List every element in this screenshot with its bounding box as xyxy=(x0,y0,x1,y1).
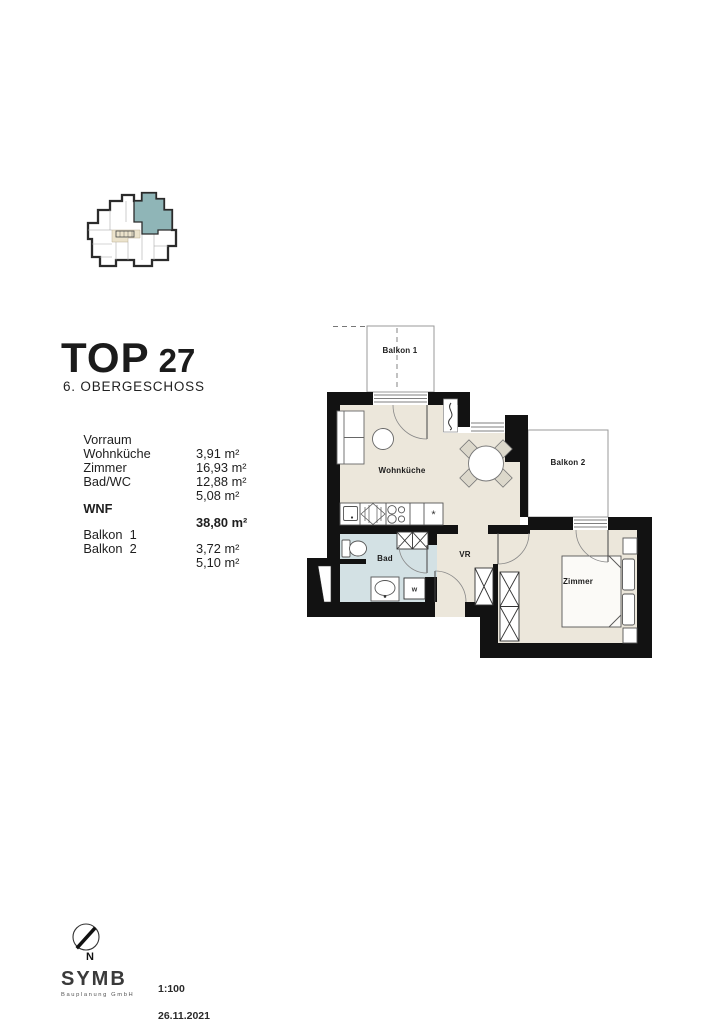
label-vr: VR xyxy=(459,550,471,559)
label-balkon1: Balkon 1 xyxy=(383,346,418,355)
radiator-icon xyxy=(444,399,458,432)
wardrobe-zimmer xyxy=(500,572,519,641)
wardrobe-vr xyxy=(475,568,493,605)
building-overview-map xyxy=(82,186,182,276)
floor-label: 6. OBERGESCHOSS xyxy=(63,379,205,394)
unit-title: TOP 27 xyxy=(61,334,195,382)
north-label: N xyxy=(86,951,94,963)
unit-title-top: TOP xyxy=(61,334,150,382)
side-table xyxy=(373,429,394,450)
bath-partition xyxy=(340,559,366,564)
sofa xyxy=(337,411,364,464)
fridge-icon: * xyxy=(431,509,436,521)
plan-sheet: TOP 27 6. OBERGESCHOSS Vorraum 3,91 m² W… xyxy=(0,0,724,1024)
balcony-1 xyxy=(333,326,434,392)
washbasin-icon xyxy=(371,577,399,601)
balcony-area: 5,10 m² xyxy=(196,556,239,570)
unit-title-number: 27 xyxy=(159,342,196,380)
floor-plan: /* fill applied via data-bind-attr on gr… xyxy=(300,310,672,672)
label-balkon2: Balkon 2 xyxy=(551,458,586,467)
label-zimmer: Zimmer xyxy=(563,577,593,586)
logo-subtext: Bauplanung GmbH xyxy=(61,992,134,998)
toilet-icon xyxy=(342,540,367,557)
sink-icon xyxy=(344,507,358,521)
company-logo: SYMB Bauplanung GmbH xyxy=(61,968,134,998)
shaft-icon xyxy=(397,532,428,549)
nightstand-top xyxy=(623,538,637,554)
kitchen-counter: * xyxy=(340,503,443,525)
scale-value: 1:100 xyxy=(158,983,185,995)
date-value: 26.11.2021 xyxy=(158,1010,210,1022)
room-label: Bad/WC xyxy=(83,474,131,489)
north-arrow-icon: N xyxy=(66,913,112,965)
balcony-label: Balkon 2 xyxy=(83,541,136,556)
area-row-balkon2: Balkon 2 5,10 m² xyxy=(62,528,272,584)
scale-and-date: 1:100 26.11.2021 xyxy=(158,969,210,1023)
label-wohnkueche: Wohnküche xyxy=(379,466,426,475)
logo-text: SYMB xyxy=(61,968,134,991)
washing-machine-icon: w xyxy=(404,578,425,599)
nightstand-bottom xyxy=(623,628,637,643)
label-bad: Bad xyxy=(377,554,393,563)
balcony-2 xyxy=(528,430,608,517)
svg-text:w: w xyxy=(411,587,418,594)
